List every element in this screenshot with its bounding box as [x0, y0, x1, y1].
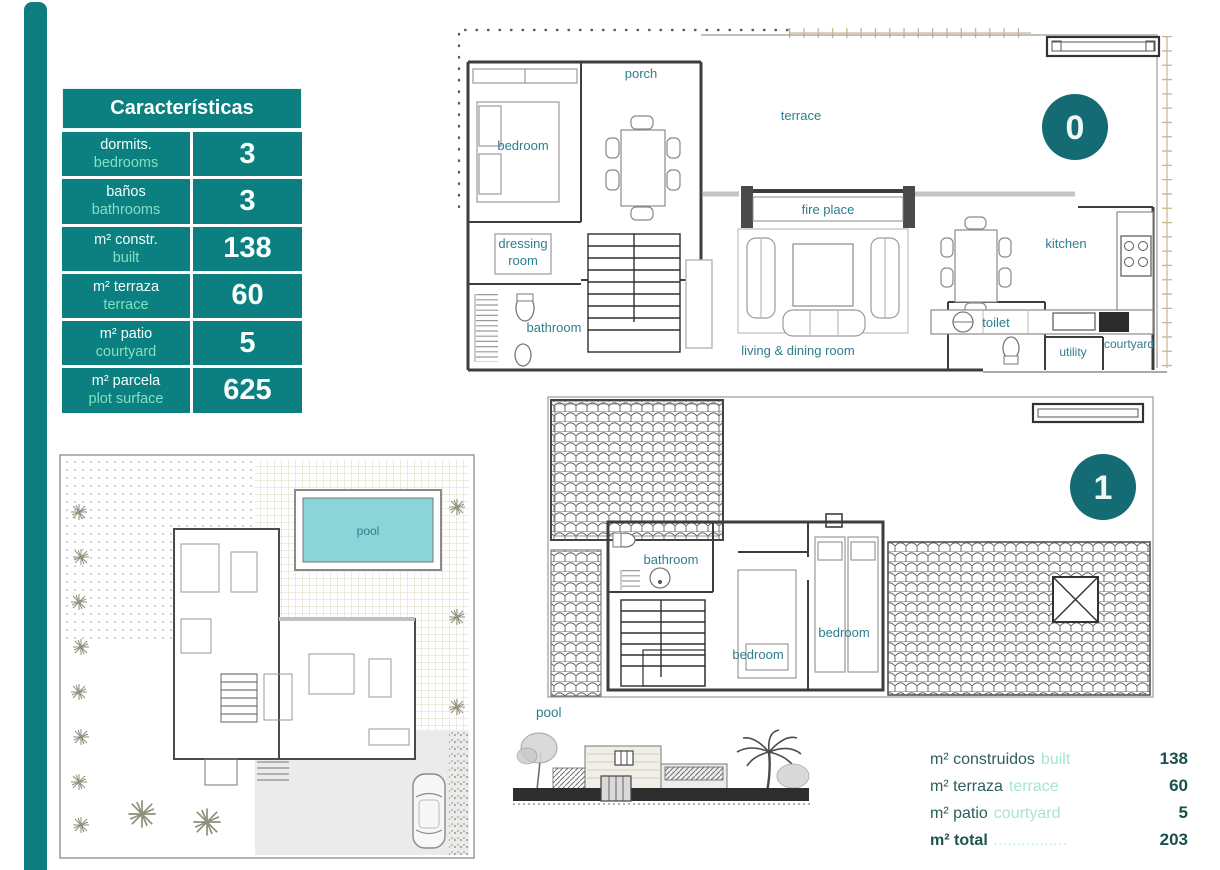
- room-label-bedroom-center: bedroom: [732, 647, 783, 662]
- deciduous-tree: [517, 733, 557, 790]
- summary-row-built: m² construidos built 138: [930, 746, 1188, 773]
- pool: pool: [295, 490, 441, 570]
- ground-floor-plan: 0: [453, 22, 1177, 390]
- room-label-dressing-1: dressing: [498, 236, 547, 251]
- table-row-terrace: m² terraza terrace 60: [62, 274, 302, 318]
- bathroom-fixtures: [475, 294, 534, 366]
- floor-badge-1: 1: [1070, 454, 1136, 520]
- table-row-plot-surface: m² parcela plot surface 625: [62, 368, 302, 412]
- summary-label-es: m² total: [930, 828, 988, 854]
- site-plan: pool: [57, 452, 477, 862]
- row-value: 625: [193, 368, 302, 412]
- floor-number: 1: [1094, 469, 1113, 507]
- room-label-porch: porch: [625, 66, 658, 81]
- sofa-cluster-glyph: [738, 229, 908, 336]
- row-label-en: built: [113, 249, 140, 267]
- first-floor-plan: 1: [543, 392, 1161, 707]
- room-label-living: living & dining room: [741, 343, 854, 358]
- window-glyph: [1047, 37, 1159, 56]
- palm-tree: [737, 730, 809, 792]
- row-label-en: plot surface: [89, 390, 164, 408]
- row-label-es: dormits.: [100, 136, 152, 154]
- summary-label-es: m² patio: [930, 801, 988, 827]
- row-label-es: m² parcela: [92, 372, 161, 390]
- row-label-es: m² constr.: [94, 231, 158, 249]
- row-value: 60: [193, 274, 302, 318]
- row-label-en: courtyard: [96, 343, 156, 361]
- left-accent-bar: [24, 2, 47, 870]
- summary-row-terrace: m² terraza terrace 60: [930, 773, 1188, 800]
- window-glyph: [1033, 404, 1143, 422]
- summary-label-en: courtyard: [994, 801, 1061, 827]
- room-label-courtyard: courtyard: [1104, 337, 1154, 351]
- summary-label-en: built: [1041, 747, 1070, 773]
- brochure-page: Características dormits. bedrooms 3 baño…: [0, 0, 1220, 870]
- room-label-bedroom: bedroom: [497, 138, 548, 153]
- summary-row-total: m² total ................ 203: [930, 827, 1188, 854]
- row-label-es: baños: [106, 183, 146, 201]
- room-label-utility: utility: [1059, 345, 1086, 359]
- characteristics-table: Características dormits. bedrooms 3 baño…: [62, 88, 302, 413]
- row-value: 5: [193, 321, 302, 365]
- room-label-terrace: terrace: [781, 108, 821, 123]
- stairs-glyph: [588, 234, 712, 352]
- row-label-en: bathrooms: [92, 201, 161, 219]
- summary-leader-dots: ................: [994, 828, 1068, 854]
- dining-set-glyph: [941, 217, 1011, 315]
- fireplace-glyph: fire place: [741, 186, 915, 228]
- hedge-strip: [449, 730, 469, 855]
- table-row-bedrooms: dormits. bedrooms 3: [62, 132, 302, 176]
- car-glyph: [413, 774, 445, 848]
- porch-dining-glyph: [606, 116, 680, 220]
- floor-badge-0: 0: [1042, 94, 1108, 160]
- room-label-fireplace: fire place: [802, 202, 855, 217]
- row-label-en: bedrooms: [94, 154, 158, 172]
- pool-caption: pool: [536, 705, 562, 720]
- row-value: 138: [193, 227, 302, 271]
- summary-row-courtyard: m² patio courtyard 5: [930, 800, 1188, 827]
- bed-glyph: [473, 69, 577, 202]
- summary-value: 5: [1179, 800, 1188, 826]
- row-label-en: terrace: [103, 296, 148, 314]
- row-label-es: m² terraza: [93, 278, 159, 296]
- room-label-dressing-2: room: [508, 253, 538, 268]
- floor-number: 0: [1066, 109, 1085, 147]
- summary-label-es: m² construidos: [930, 747, 1035, 773]
- row-value: 3: [193, 132, 302, 176]
- summary-label-en: terrace: [1009, 774, 1059, 800]
- room-label-bathroom: bathroom: [527, 320, 582, 335]
- room-label-kitchen: kitchen: [1045, 236, 1086, 251]
- table-title: Características: [62, 88, 302, 129]
- stairs-glyph: [621, 600, 705, 686]
- room-label-toilet: toilet: [982, 315, 1010, 330]
- table-row-bathrooms: baños bathrooms 3: [62, 179, 302, 223]
- room-label-bedroom-right: bedroom: [818, 625, 869, 640]
- summary-value: 60: [1169, 773, 1188, 799]
- house-volumes: [553, 746, 727, 790]
- elevation-sketch: [505, 726, 845, 830]
- summary-label-es: m² terraza: [930, 774, 1003, 800]
- table-row-built: m² constr. built 138: [62, 227, 302, 271]
- table-row-courtyard: m² patio courtyard 5: [62, 321, 302, 365]
- summary-value: 203: [1160, 827, 1188, 853]
- room-label-bathroom: bathroom: [644, 552, 699, 567]
- area-summary: m² construidos built 138 m² terraza terr…: [930, 746, 1188, 854]
- row-value: 3: [193, 179, 302, 223]
- row-label-es: m² patio: [100, 325, 152, 343]
- summary-value: 138: [1160, 746, 1188, 772]
- pool-label: pool: [357, 524, 380, 538]
